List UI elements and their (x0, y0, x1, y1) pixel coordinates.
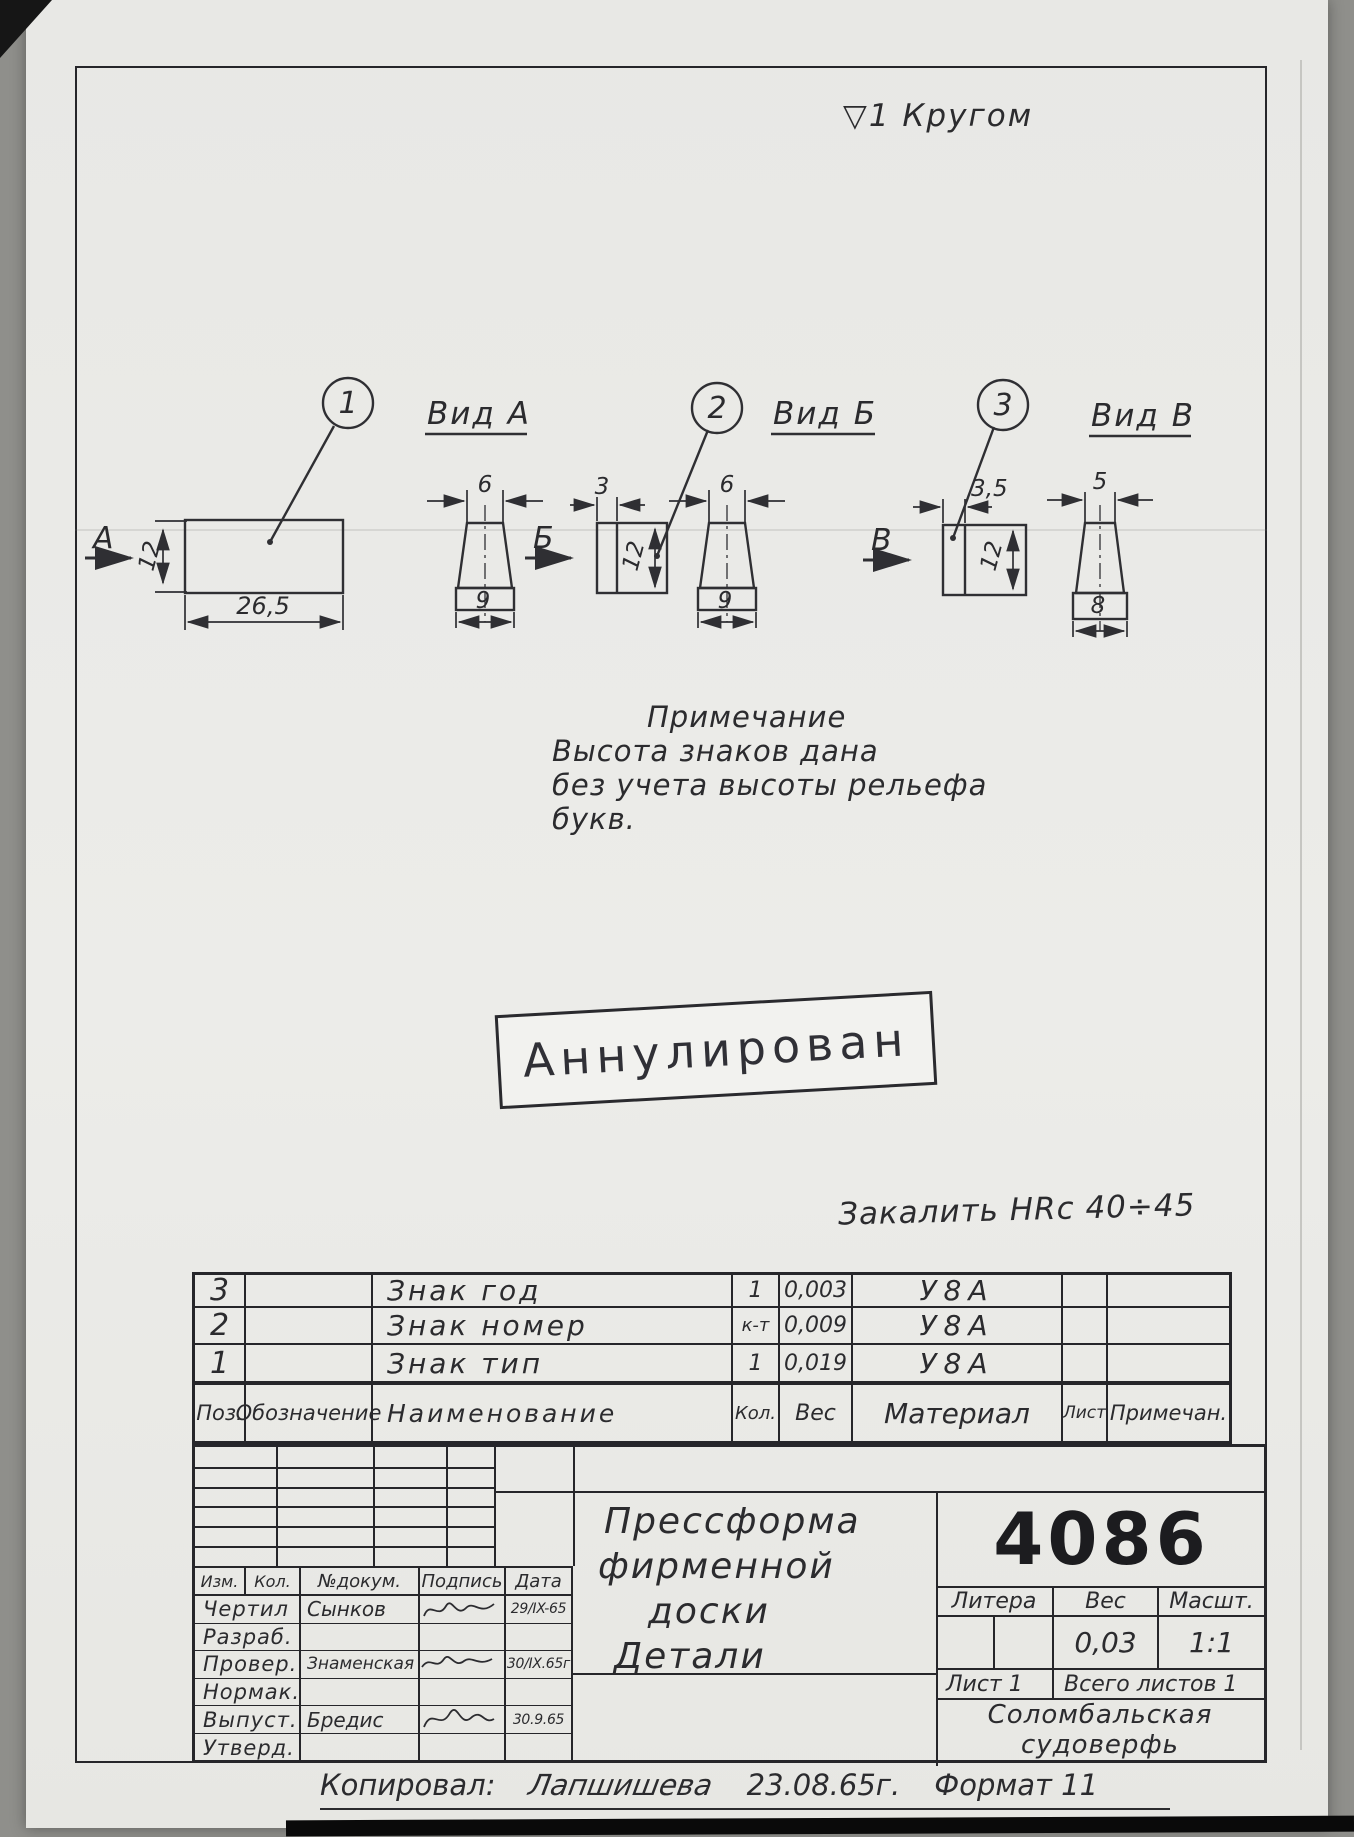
dim-b-bottom: 9 (718, 588, 733, 614)
header-qty: Кол. (733, 1383, 780, 1441)
drawing-note: Примечание Высота знаков дана без учета … (552, 700, 1072, 836)
weight-value: 0,03 (1054, 1617, 1159, 1668)
staff-date: 30.9.65 (506, 1706, 571, 1734)
cell-pos: 2 (195, 1308, 246, 1345)
staff-date (506, 1679, 571, 1707)
callout-leaders (267, 378, 1028, 559)
title-line: доски (576, 1589, 933, 1634)
view-texts: 1 Вид А 2 Вид Б 3 Вид В А Б В 26,5 12 6 … (91, 386, 1195, 620)
cell-weight: 0,009 (780, 1308, 853, 1345)
cell-weight: 0,019 (780, 1345, 853, 1383)
signature-scribble (420, 1706, 506, 1734)
cell-sheet-empty (1063, 1308, 1108, 1345)
header-note: Примечан. (1108, 1383, 1229, 1441)
note-line: без учета высоты рельефа (552, 768, 1072, 802)
view-direction-arrows (85, 558, 909, 560)
cell-qty: 1 (733, 1275, 780, 1308)
litera-cell-empty (936, 1617, 995, 1668)
staff-row-utverd: Утверд. (195, 1734, 571, 1762)
header-weight: Вес (780, 1383, 853, 1441)
header-kol: Кол. (246, 1568, 301, 1596)
sheet-number: Лист 1 (936, 1670, 1054, 1698)
weight-label: Вес (1054, 1588, 1159, 1615)
cell-designation-empty (246, 1345, 373, 1383)
cell-designation-empty (246, 1308, 373, 1345)
cell-note-empty (1108, 1275, 1229, 1308)
format-label: Формат 11 (934, 1768, 1098, 1802)
organization-line: Соломбальская (988, 1700, 1213, 1730)
dim-b-height: 12 (618, 539, 651, 574)
staff-name (301, 1679, 420, 1707)
cell-name: Знак год (373, 1275, 733, 1308)
scan-artifact-strip (286, 1816, 1354, 1837)
litera-label: Литера (936, 1588, 1054, 1615)
paper-crease (1300, 60, 1302, 1750)
cell-qty: 1 (733, 1345, 780, 1383)
staff-name: Бредис (301, 1706, 420, 1734)
scale-value: 1:1 (1159, 1617, 1264, 1668)
staff-name: Сынков (301, 1596, 420, 1624)
header-sign: Подпись (420, 1568, 506, 1596)
cell-designation-empty (246, 1275, 373, 1308)
view-a-label: Вид А (427, 396, 531, 432)
dim-v-bottom: 8 (1091, 593, 1106, 619)
cancelled-stamp-text: Аннулирован (521, 1012, 910, 1088)
note-line: букв. (552, 802, 1072, 836)
staff-row-vypust: Выпуст. Бредис 30.9.65 (195, 1706, 571, 1734)
staff-role: Чертил (195, 1596, 301, 1624)
dim-a-bottom: 9 (476, 588, 491, 614)
surface-finish-note: ▽1 Кругом (843, 98, 1033, 134)
staff-row-normak: Нормак. (195, 1679, 571, 1707)
drawing-title: Прессформа фирменной доски Детали (576, 1499, 933, 1673)
staff-date (506, 1734, 571, 1762)
staff-name (301, 1734, 420, 1762)
sheet-info-row: Лист 1 Всего листов 1 (936, 1668, 1264, 1698)
divider (496, 1491, 1264, 1493)
litera-cell-empty (995, 1617, 1054, 1668)
dim-plate-width: 26,5 (236, 592, 289, 620)
dim-b-top: 6 (720, 472, 735, 498)
litera-weight-scale-header: Литера Вес Масшт. (936, 1586, 1264, 1615)
staff-role: Провер. (195, 1651, 301, 1679)
arrow-label-b: Б (533, 521, 554, 556)
view-label-underlines (425, 434, 1191, 436)
drawing-number: 4086 (939, 1494, 1264, 1584)
dim-v-height: 12 (976, 539, 1009, 574)
total-sheets: Всего листов 1 (1054, 1670, 1264, 1698)
header-doc: №докум. (301, 1568, 420, 1596)
staff-name: Знаменская (301, 1651, 420, 1679)
divider (573, 1673, 936, 1675)
note-title: Примечание (552, 700, 1072, 734)
cell-sheet-empty (1063, 1345, 1108, 1383)
scale-label: Масшт. (1159, 1588, 1264, 1615)
signature-table: Изм. Кол. №докум. Подпись Дата Чертил Сы… (195, 1566, 573, 1760)
cell-note-empty (1108, 1345, 1229, 1383)
staff-date (506, 1624, 571, 1652)
scan-artifact-corner (0, 0, 52, 58)
header-name: Наименование (373, 1383, 733, 1441)
title-line: фирменной (576, 1544, 933, 1589)
cell-weight: 0,003 (780, 1275, 853, 1308)
cell-sheet-empty (1063, 1275, 1108, 1308)
title-block: Изм. Кол. №докум. Подпись Дата Чертил Сы… (192, 1444, 1267, 1763)
cell-material: У8А (853, 1345, 1063, 1383)
dim-v-top: 5 (1093, 469, 1108, 495)
header-date: Дата (506, 1568, 571, 1596)
callout-2-number: 2 (707, 391, 726, 426)
staff-role: Выпуст. (195, 1706, 301, 1734)
copy-date: 23.08.65г. (747, 1768, 901, 1802)
signature-scribble (420, 1596, 506, 1624)
note-line: Высота знаков дана (552, 734, 1072, 768)
copied-by-line: Копировал: Лапшишева 23.08.65г. Формат 1… (320, 1768, 1170, 1810)
cell-pos: 1 (195, 1345, 246, 1383)
copied-label: Копировал: (320, 1768, 495, 1802)
dim-a-top: 6 (478, 472, 493, 498)
litera-weight-scale-values: 0,03 1:1 (936, 1615, 1264, 1668)
signature-scribble (420, 1651, 506, 1679)
scanned-drawing-sheet: ▽1 Кругом (0, 0, 1354, 1837)
header-izm: Изм. (195, 1568, 246, 1596)
header-material: Материал (853, 1383, 1063, 1441)
arrow-label-v: В (871, 523, 892, 558)
divider (573, 1447, 575, 1566)
staff-date: 30/IX.65г (506, 1651, 571, 1679)
staff-row-razrab: Разраб. (195, 1624, 571, 1652)
callout-3-number: 3 (993, 388, 1012, 423)
header-sheet: Лист (1063, 1383, 1108, 1441)
header-designation: Обозначение (246, 1383, 373, 1441)
staff-date: 29/IX-65 (506, 1596, 571, 1624)
revision-grid (195, 1447, 496, 1566)
staff-row-prover: Провер. Знаменская 30/IX.65г (195, 1651, 571, 1679)
cell-name: Знак тип (373, 1345, 733, 1383)
staff-role: Разраб. (195, 1624, 301, 1652)
plate-outline (185, 520, 343, 593)
view-v-label: Вид В (1091, 398, 1195, 434)
callout-1-number: 1 (338, 386, 357, 421)
staff-row-chertil: Чертил Сынков 29/IX-65 (195, 1596, 571, 1624)
arrow-label-a: А (91, 521, 114, 556)
signature-cell-empty (420, 1679, 506, 1707)
title-line: Прессформа (576, 1499, 933, 1544)
signature-cell-empty (420, 1624, 506, 1652)
cell-material: У8А (853, 1308, 1063, 1345)
staff-role: Утверд. (195, 1734, 301, 1762)
cell-note-empty (1108, 1308, 1229, 1345)
staff-role: Нормак. (195, 1679, 301, 1707)
staff-name (301, 1624, 420, 1652)
view-b-label: Вид Б (773, 396, 877, 432)
signature-table-header: Изм. Кол. №докум. Подпись Дата (195, 1568, 571, 1596)
signature-cell-empty (420, 1734, 506, 1762)
dim-v-thickness: 3,5 (971, 476, 1008, 502)
organization-line: судоверфь (1021, 1730, 1179, 1760)
organization-cell: Соломбальская судоверфь (936, 1698, 1264, 1760)
cell-pos: 3 (195, 1275, 246, 1308)
cell-name: Знак номер (373, 1308, 733, 1345)
dim-plate-height: 12 (134, 539, 167, 574)
cell-material: У8А (853, 1275, 1063, 1308)
dim-b-thickness: 3 (595, 474, 610, 500)
specification-table: 3 Знак год 1 0,003 У8А 2 Знак номер к-т … (192, 1272, 1232, 1444)
copied-by-name: Лапшишева (526, 1768, 715, 1802)
cell-qty: к-т (733, 1308, 780, 1345)
orthographic-views: 1 Вид А 2 Вид Б 3 Вид В А Б В 26,5 12 6 … (75, 300, 1267, 650)
